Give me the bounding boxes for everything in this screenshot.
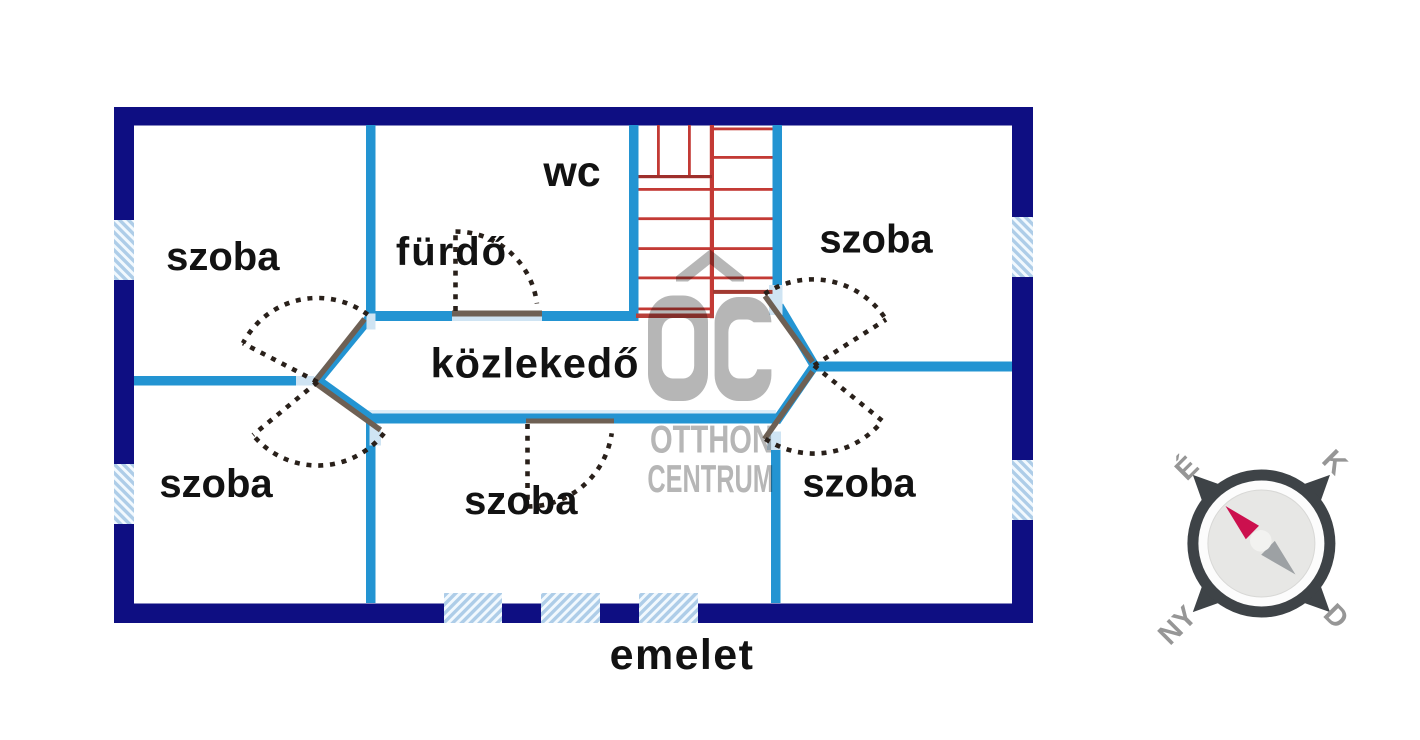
svg-text:OTTHON: OTTHON: [650, 419, 773, 462]
svg-text:szoba: szoba: [802, 462, 916, 506]
svg-text:szoba: szoba: [819, 218, 933, 262]
svg-text:szoba: szoba: [166, 235, 280, 279]
svg-text:közlekedő: közlekedő: [431, 340, 640, 387]
svg-text:szoba: szoba: [464, 479, 578, 523]
svg-text:CENTRUM: CENTRUM: [647, 458, 774, 501]
svg-text:emelet: emelet: [610, 631, 755, 679]
svg-text:szoba: szoba: [159, 462, 273, 506]
svg-text:wc: wc: [542, 148, 600, 196]
svg-text:fürdő: fürdő: [396, 230, 508, 274]
